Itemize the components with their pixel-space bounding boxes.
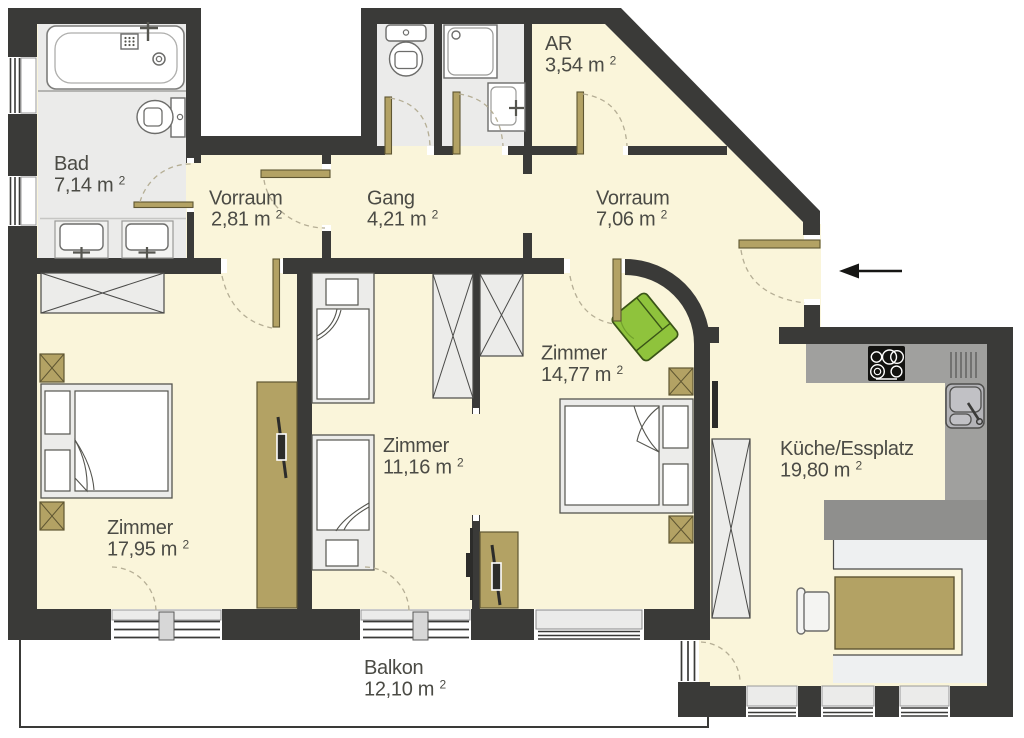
- svg-text:4,21 m 2: 4,21 m 2: [367, 208, 439, 231]
- svg-text:14,77 m 2: 14,77 m 2: [541, 363, 623, 386]
- svg-text:Zimmer: Zimmer: [107, 517, 174, 539]
- svg-text:12,10 m 2: 12,10 m 2: [364, 678, 446, 701]
- svg-text:Zimmer: Zimmer: [383, 435, 450, 457]
- svg-text:19,80 m 2: 19,80 m 2: [780, 459, 862, 482]
- svg-text:Balkon: Balkon: [364, 657, 423, 679]
- svg-text:17,95 m 2: 17,95 m 2: [107, 538, 189, 561]
- svg-text:AR: AR: [545, 33, 572, 55]
- svg-text:Vorraum: Vorraum: [209, 188, 283, 210]
- svg-text:2,81 m 2: 2,81 m 2: [211, 208, 283, 231]
- svg-text:11,16 m 2: 11,16 m 2: [383, 456, 464, 479]
- svg-text:Vorraum: Vorraum: [596, 188, 670, 210]
- svg-text:Zimmer: Zimmer: [541, 343, 608, 365]
- svg-text:3,54 m 2: 3,54 m 2: [545, 54, 617, 77]
- svg-text:7,06 m 2: 7,06 m 2: [596, 208, 668, 231]
- svg-text:7,14 m 2: 7,14 m 2: [54, 174, 126, 197]
- svg-text:Gang: Gang: [367, 188, 415, 210]
- svg-text:Küche/Essplatz: Küche/Essplatz: [780, 438, 914, 460]
- svg-text:Bad: Bad: [54, 153, 89, 175]
